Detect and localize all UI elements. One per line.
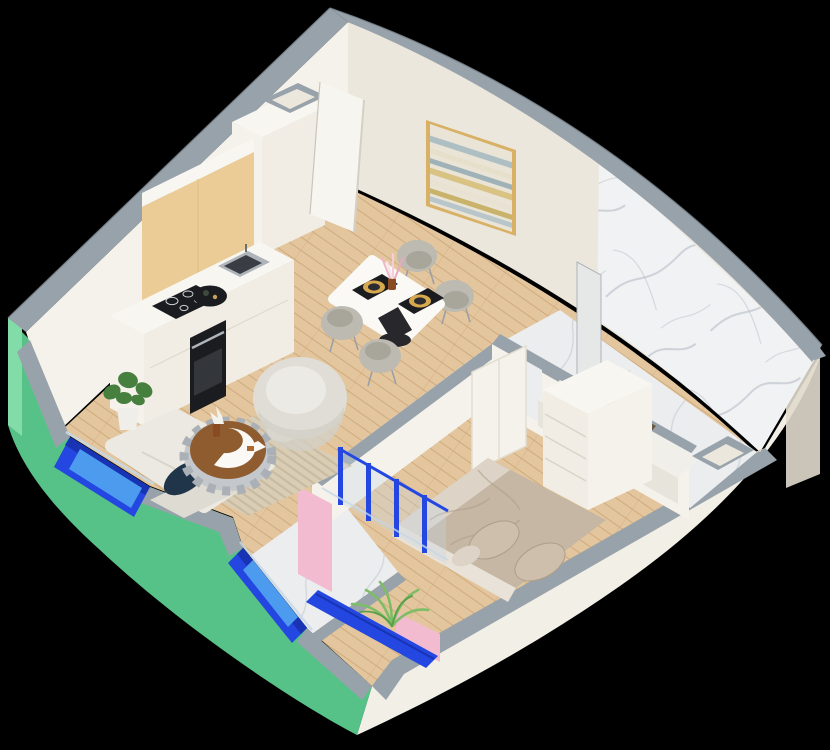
- bathroom-door-opening: [514, 354, 542, 424]
- dining-table-foot: [379, 333, 411, 347]
- window1-sill: [69, 449, 142, 508]
- table-metal-base: [184, 421, 272, 491]
- vanity-top: [538, 380, 700, 478]
- balcony-marble-floor: [250, 494, 398, 634]
- painting-canvas: [430, 124, 512, 232]
- sofa-chaise: [150, 472, 242, 518]
- band-segment-c: [297, 628, 372, 700]
- kitchen: [110, 92, 325, 426]
- placemat-2: [398, 288, 444, 314]
- wall-north-east-face: [348, 22, 814, 452]
- glazing-posts: [338, 447, 427, 553]
- painting-abstract-strokes: [428, 138, 514, 226]
- duct-shaft: [262, 83, 326, 113]
- counter-front: [144, 260, 294, 426]
- duct-opening: [272, 89, 315, 109]
- wardrobe-panels: [472, 346, 526, 472]
- plate-2: [409, 295, 431, 308]
- plate-1: [363, 281, 385, 294]
- tall-cabinet-top: [232, 92, 325, 137]
- cooktop-burners: [166, 291, 203, 311]
- dresser-top: [543, 360, 652, 414]
- towel-roll-2: [638, 423, 649, 431]
- bed-pillow-1: [463, 513, 526, 567]
- building: [8, 8, 826, 735]
- sink-frame: [218, 251, 270, 277]
- dining-chair-4: [359, 339, 401, 386]
- glass-partition: [577, 262, 601, 392]
- table-vase: [213, 424, 220, 437]
- counter-top: [110, 242, 294, 334]
- separator-wall-face: [312, 340, 497, 536]
- band-step: [219, 518, 243, 556]
- balcony-pink-wall-left: [298, 486, 332, 592]
- table-book: [238, 441, 266, 456]
- tall-cabinet-front: [262, 107, 325, 255]
- door-edge: [354, 100, 364, 232]
- balcony-pink-wall-right: [396, 612, 440, 662]
- service-niche-opening: [702, 444, 744, 466]
- painting-frame: [426, 120, 516, 236]
- exterior-wall-green: [8, 318, 372, 735]
- roofline-ne: [330, 8, 822, 345]
- window1-glass: [66, 432, 154, 484]
- dresser-front-right: [588, 384, 652, 510]
- sofa: [112, 416, 268, 518]
- navy-pillow: [158, 454, 212, 502]
- dining-table-top: [333, 260, 440, 342]
- window1-frame: [54, 437, 150, 517]
- table-wood-top: [190, 421, 266, 479]
- balcony-glazing: [240, 447, 448, 668]
- armchair-shell: [253, 357, 347, 439]
- plate-1-center: [368, 283, 380, 290]
- glazing-top-rail: [338, 448, 448, 511]
- dining-chair-3: [321, 306, 363, 352]
- balcony: [250, 494, 406, 642]
- window2-sill: [243, 560, 298, 627]
- counter-end-panel: [110, 316, 144, 426]
- balcony-edge-band: [312, 572, 406, 642]
- table-scallop-ribs: [184, 421, 272, 491]
- glass-pane: [340, 447, 446, 564]
- background: [0, 0, 830, 750]
- bathroom-marble-wall: [597, 160, 814, 452]
- plate-2-center: [414, 297, 426, 304]
- bed-small-pillow: [449, 542, 484, 571]
- upper-cabinet-top-strip: [142, 138, 254, 207]
- sink-basin: [224, 255, 262, 274]
- oven-handle: [192, 332, 224, 348]
- side-pouf: [267, 418, 299, 442]
- duct-rim: [262, 83, 326, 113]
- oven-window: [194, 348, 222, 396]
- dining-table-base: [378, 307, 412, 341]
- band-segment-b: [141, 487, 233, 534]
- window2-frame: [228, 548, 307, 643]
- dining-chair-2: [434, 280, 474, 324]
- bathroom-wall-face: [492, 344, 689, 520]
- roofline-nw: [8, 8, 330, 318]
- entry-door-panel: [310, 82, 364, 232]
- window-balcony: [228, 548, 307, 643]
- dresser: [543, 360, 652, 510]
- floorplan-render: [0, 0, 830, 750]
- band-segment-a: [17, 340, 70, 448]
- table-white-tray: [214, 428, 255, 468]
- vase-leaves: [210, 406, 224, 424]
- service-niche-rim: [692, 436, 754, 470]
- facade-corner-inner-face: [786, 352, 820, 488]
- tall-cabinet-side: [232, 122, 262, 255]
- drawer-line: [150, 300, 288, 368]
- mattress-edge: [392, 524, 516, 602]
- armchair: [253, 357, 347, 451]
- striped-rug: [150, 416, 352, 516]
- wall-north-east-top-band: [330, 8, 822, 362]
- window-living-room: [54, 437, 150, 517]
- window2-frame-dark: [237, 548, 307, 634]
- armchair-seat: [266, 366, 326, 414]
- dining-chair-1: [397, 240, 437, 284]
- round-coffee-table: [184, 406, 272, 491]
- window1-frame-dark: [65, 437, 150, 495]
- flower-vase: [388, 278, 396, 290]
- wall-north-west-face: [26, 22, 348, 430]
- bathroom-fittings: [538, 262, 754, 504]
- towel-basket: [612, 408, 656, 440]
- tray-bottle: [203, 290, 209, 296]
- wall-painting: [426, 120, 516, 236]
- facade-corner-top-band: [782, 348, 826, 370]
- balcony-sill-shadow: [316, 594, 434, 659]
- door-hinge-edge: [310, 82, 320, 214]
- dresser-drawer-lines: [545, 414, 586, 481]
- book-mark: [247, 446, 254, 451]
- vanity-front: [538, 400, 678, 504]
- duvet-crumples: [430, 470, 520, 545]
- bedroom: [392, 346, 652, 602]
- separator-wall-top-band: [312, 340, 507, 486]
- bed-pillow-2: [509, 535, 572, 589]
- wall-north-west-top-band: [8, 8, 348, 332]
- plant-pot: [117, 408, 139, 430]
- armchair-front-shade: [258, 406, 344, 451]
- oven: [190, 320, 226, 414]
- towel-roll-1: [627, 417, 638, 425]
- dining-set: [321, 240, 474, 386]
- facade-south-east: [357, 352, 822, 735]
- pampas-flowers: [382, 254, 403, 278]
- balustrade-glass: [322, 488, 448, 560]
- double-bed: [392, 458, 606, 602]
- placemat-1: [352, 274, 398, 300]
- tray-item: [213, 295, 217, 299]
- bed-sheet-fold: [398, 458, 510, 536]
- monstera-plant: [101, 370, 156, 430]
- wood-floor: [62, 160, 765, 686]
- decor-tray: [193, 286, 227, 307]
- exterior-wall-green-edge: [8, 318, 22, 436]
- sofa-body: [112, 416, 268, 506]
- induction-cooktop: [152, 285, 220, 319]
- green-wall-top-bands: [17, 340, 372, 700]
- bathroom-floor: [505, 310, 757, 508]
- dresser-front-left: [543, 390, 588, 510]
- bed-duvet: [398, 458, 606, 588]
- bathroom-wall-top-band: [492, 334, 697, 456]
- upper-cabinet-wood-front: [142, 152, 254, 320]
- window2-glass: [240, 542, 312, 630]
- plant-leaves: [101, 370, 156, 407]
- balcony-blue-sill: [306, 590, 438, 668]
- facade-wall-top-band: [372, 448, 777, 700]
- palm-plant: [352, 582, 428, 626]
- entry-door: [310, 82, 364, 232]
- sofa-cushion-line: [142, 452, 210, 487]
